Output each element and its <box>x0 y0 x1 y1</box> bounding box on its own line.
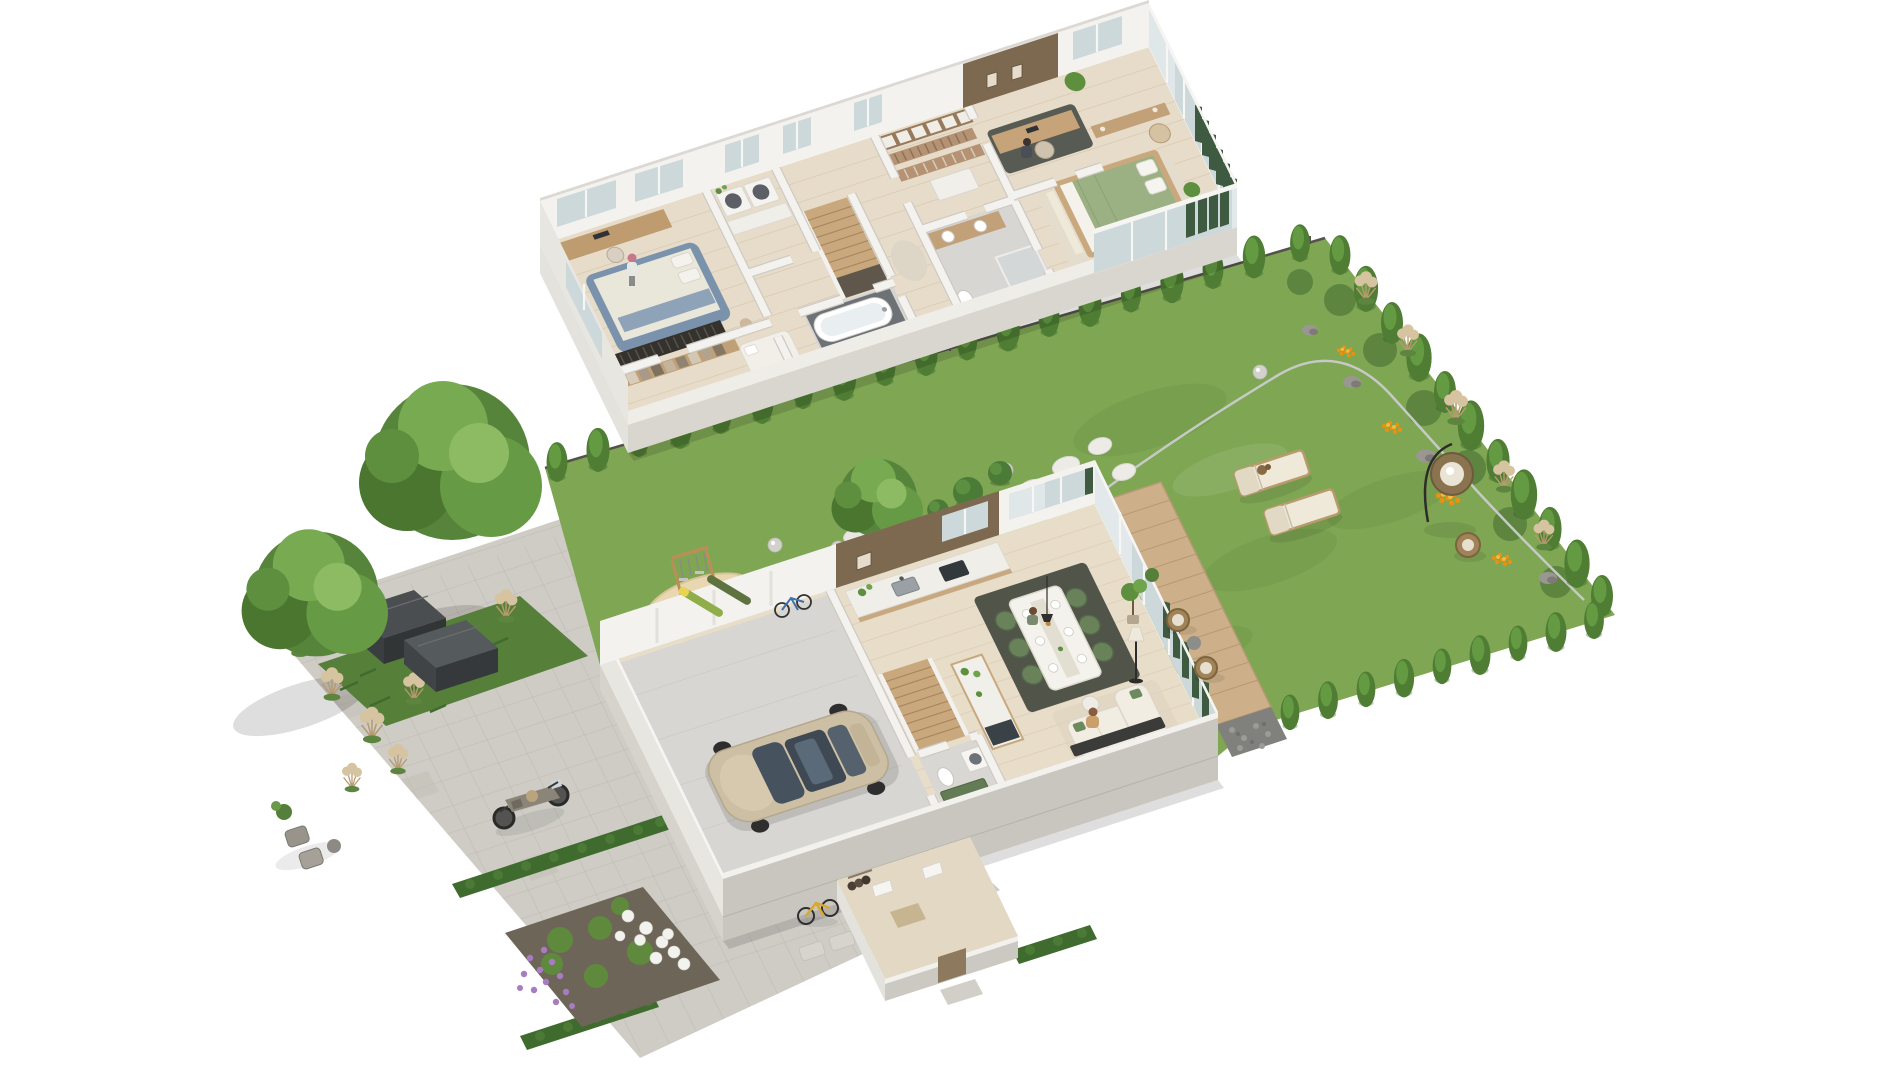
entry-step <box>940 979 983 1005</box>
outdoor-chairs <box>271 801 343 876</box>
floor-plan-render <box>0 0 1900 1067</box>
floor-plan-svg <box>0 0 1900 1067</box>
